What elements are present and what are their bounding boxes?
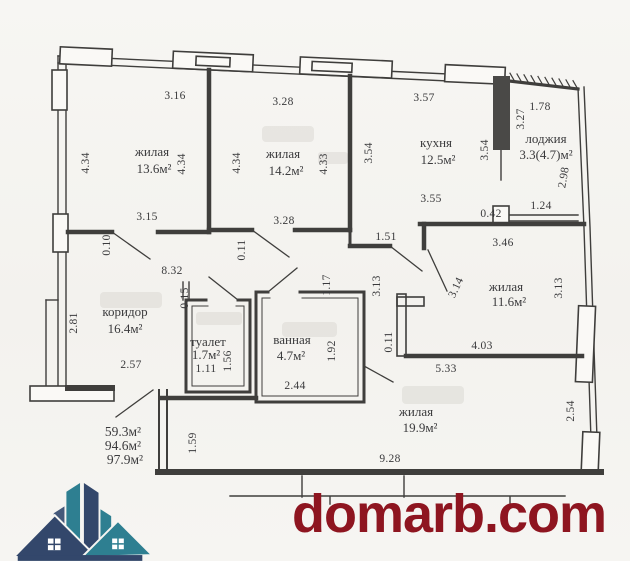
dimension-label: 1.59 [187,432,199,453]
floor-plan: 3.163.283.571.783.153.281.513.550.421.24… [0,0,630,510]
dimension-label: 3.13 [553,277,565,298]
total-label: 94.6м² [105,438,141,453]
dimension-label: 0.42 [480,208,501,220]
scanned-floorplan-page: 3.163.283.571.783.153.281.513.550.421.24… [0,0,630,561]
dimension-label: 2.54 [565,400,577,421]
dimension-label: 0.10 [101,234,113,255]
dimension-label: 3.14 [446,276,466,300]
dimension-label: 2.44 [284,380,305,392]
room-name-label: кухня [420,135,452,150]
dimension-label: 4.34 [231,152,243,173]
dimension-label: 3.46 [492,237,513,249]
dimension-label: 4.03 [471,340,492,352]
dimension-label: 3.57 [413,92,434,104]
dimension-label: 3.27 [515,108,527,129]
dimension-label: 4.33 [318,153,330,174]
dimension-label: 1.11 [196,363,217,375]
room-name-label: коридор [102,304,147,319]
room-area-label: 16.4м² [108,321,143,336]
dimension-label: 0.15 [179,287,191,308]
dimension-label: 1.17 [321,274,333,295]
room-name-label: лоджия [525,131,566,146]
dimension-label: 1.92 [326,340,338,361]
dimension-label: 3.16 [164,90,185,102]
room-name-label: ванная [273,332,310,347]
dimension-label: 5.33 [435,363,456,375]
room-area-label: 12.5м² [421,152,456,167]
dimension-label: 3.28 [272,96,293,108]
dimension-label: 3.55 [420,193,441,205]
dimension-label: 2.57 [120,359,141,371]
domarb-logo [8,480,154,561]
room-area-label: 19.9м² [403,420,438,435]
dimension-label: 3.28 [273,215,294,227]
kitchen-loggia-pier [493,76,510,150]
room-name-label: жилая [265,146,300,161]
dimension-label: 3.13 [371,275,383,296]
room-area-label: 1.7м² [192,347,220,362]
dimension-label: 4.34 [176,153,188,174]
watermark-site-text: domarb.com [292,486,626,546]
room-name-label: жилая [134,144,169,159]
dimension-label: 4.34 [80,152,92,173]
dimension-label: 0.11 [383,332,395,353]
room-area-label: 11.6м² [492,294,526,309]
dimension-label: 1.56 [222,350,234,371]
dimension-label: 1.51 [375,231,396,243]
dimension-label: 1.78 [529,101,550,113]
room-name-label: жилая [488,279,523,294]
total-label: 59.3м² [105,424,141,439]
room-area-label: 4.7м² [277,348,305,363]
dimension-label: 0.11 [236,240,248,261]
dimension-label: 3.15 [136,211,157,223]
dimension-label: 3.54 [479,139,491,160]
dimension-label: 9.28 [379,453,400,465]
room-area-label: 13.6м² [137,161,172,176]
logo-houses [14,515,152,557]
room-name-label: жилая [398,404,433,419]
dimension-label: 2.98 [556,166,572,189]
dimension-label: 2.81 [68,312,80,333]
dimension-label: 8.32 [161,265,182,277]
total-label: 97.9м² [107,452,143,467]
room-area-label: 14.2м² [269,163,304,178]
dimension-label: 1.24 [530,200,551,212]
logo-baseline [18,555,143,561]
dimension-label: 3.54 [363,142,375,163]
room-area-label: 3.3(4.7)м² [519,147,572,162]
